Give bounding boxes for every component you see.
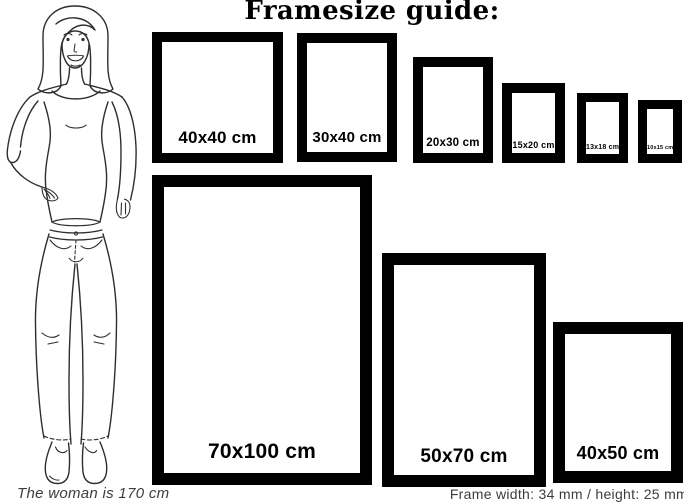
frame-label: 13x18 cm: [586, 144, 619, 151]
frame-40x40: 40x40 cm: [152, 32, 283, 163]
framesize-guide: Framesize guide:: [0, 0, 684, 504]
frame-label: 40x40 cm: [162, 128, 273, 148]
frame-13x18: 13x18 cm: [577, 93, 628, 163]
woman-height-note: The woman is 170 cm: [17, 485, 169, 502]
woman-figure: [0, 2, 150, 490]
frame-40x50: 40x50 cm: [553, 322, 683, 483]
frame-10x15: 10x15 cm: [638, 100, 682, 163]
frame-15x20: 15x20 cm: [502, 83, 565, 163]
frame-label: 50x70 cm: [394, 446, 534, 468]
frame-label: 70x100 cm: [164, 440, 360, 464]
frame-label: 40x50 cm: [565, 443, 671, 464]
frame-70x100: 70x100 cm: [152, 175, 372, 485]
frame-50x70: 50x70 cm: [382, 253, 546, 487]
frame-label: 30x40 cm: [307, 129, 387, 146]
frame-dimensions-note: Frame width: 34 mm / height: 25 mm: [450, 486, 684, 502]
page-title: Framesize guide:: [60, 0, 684, 26]
frame-30x40: 30x40 cm: [297, 33, 397, 162]
frame-label: 10x15 cm: [647, 145, 673, 151]
woman-line-art-icon: [0, 2, 150, 488]
frame-label: 20x30 cm: [423, 137, 483, 149]
frame-20x30: 20x30 cm: [413, 57, 493, 163]
frame-label: 15x20 cm: [512, 140, 555, 150]
